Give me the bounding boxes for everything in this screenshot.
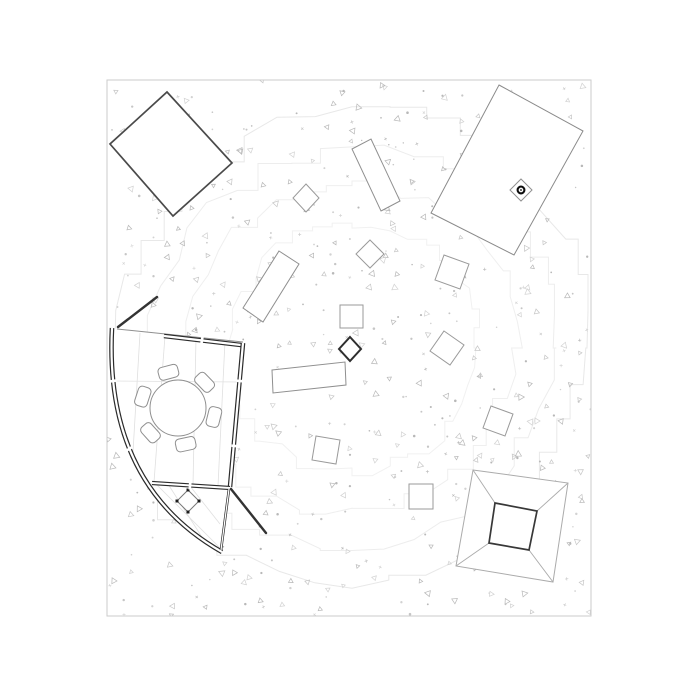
texture-dot	[313, 244, 315, 246]
texture-dot	[402, 396, 404, 398]
texture-dot	[431, 205, 433, 207]
site-plan-page	[0, 0, 700, 700]
texture-dot	[212, 129, 214, 131]
texture-dot	[295, 425, 297, 427]
texture-dot	[479, 407, 480, 408]
column-marker-dot	[520, 189, 522, 191]
pyramid-skylight	[456, 470, 568, 582]
texture-dot	[493, 388, 495, 390]
texture-dot	[224, 331, 226, 333]
texture-dot	[413, 158, 415, 160]
block-square-south-center	[409, 484, 433, 509]
texture-dot	[302, 304, 304, 306]
texture-dot	[420, 314, 422, 316]
texture-dot	[206, 242, 208, 244]
texture-dot	[448, 312, 450, 314]
texture-dot	[455, 483, 457, 485]
texture-dot	[411, 264, 412, 265]
texture-dot	[276, 513, 279, 516]
texture-dot	[431, 217, 433, 219]
texture-dot	[521, 307, 523, 309]
texture-dot	[427, 603, 429, 605]
texture-dot	[410, 338, 412, 340]
texture-dot	[361, 270, 363, 272]
texture-dot	[222, 189, 224, 191]
texture-dot	[525, 360, 527, 362]
texture-dot	[413, 435, 416, 438]
texture-dot	[373, 327, 376, 330]
texture-dot	[422, 90, 424, 92]
cabinet-corner	[187, 511, 190, 514]
texture-dot	[191, 307, 193, 309]
texture-dot	[519, 287, 521, 289]
texture-dot	[385, 250, 386, 251]
texture-dot	[420, 411, 422, 413]
texture-dot	[210, 305, 211, 306]
texture-dot	[230, 198, 232, 200]
texture-dot	[572, 526, 574, 528]
texture-dot	[349, 238, 351, 240]
texture-dot	[550, 272, 552, 274]
texture-dot	[403, 142, 404, 143]
texture-dot	[242, 338, 244, 340]
texture-dot	[454, 400, 457, 403]
texture-dot	[586, 256, 588, 258]
texture-dot	[111, 129, 113, 131]
texture-dot	[122, 599, 124, 601]
texture-dot	[131, 105, 133, 107]
texture-dot	[244, 603, 246, 605]
texture-dot	[439, 288, 441, 290]
texture-dot	[209, 579, 210, 580]
texture-dot	[296, 112, 298, 114]
texture-dot	[152, 275, 154, 277]
texture-dot	[326, 596, 327, 597]
texture-dot	[581, 165, 584, 168]
texture-dot	[388, 144, 389, 145]
texture-dot	[381, 338, 383, 340]
pyramid-inner	[489, 503, 537, 550]
texture-dot	[212, 111, 214, 113]
texture-dot	[151, 605, 153, 607]
texture-dot	[427, 446, 429, 448]
texture-dot	[246, 129, 248, 131]
texture-dot	[117, 306, 119, 308]
texture-dot	[223, 546, 225, 548]
texture-dot	[490, 461, 492, 463]
round-table	[150, 380, 206, 436]
texture-dot	[334, 263, 336, 265]
texture-dot	[539, 461, 541, 463]
texture-dot	[297, 523, 299, 525]
texture-dot	[233, 558, 235, 560]
texture-dot	[152, 519, 155, 522]
texture-dot	[130, 479, 132, 481]
texture-dot	[395, 146, 397, 148]
texture-dot	[572, 293, 574, 295]
texture-dot	[464, 488, 466, 490]
texture-dot	[583, 147, 585, 149]
texture-dot	[397, 316, 399, 318]
wall-joint-gap	[128, 448, 129, 450]
texture-dot	[323, 167, 325, 169]
texture-dot	[156, 217, 158, 219]
texture-dot	[335, 482, 337, 484]
texture-dot	[138, 195, 141, 198]
texture-dot	[453, 290, 455, 292]
texture-dot	[243, 128, 244, 129]
texture-dot	[260, 572, 262, 574]
texture-dot	[191, 96, 193, 98]
texture-dot	[271, 559, 273, 561]
texture-dot	[441, 95, 443, 97]
texture-dot	[574, 590, 576, 592]
block-square-center-north	[340, 305, 363, 328]
texture-dot	[320, 518, 322, 520]
texture-dot	[512, 456, 514, 458]
texture-dot	[369, 430, 371, 432]
texture-dot	[488, 592, 489, 593]
texture-dot	[344, 511, 346, 513]
texture-dot	[317, 245, 319, 247]
texture-dot	[349, 454, 351, 456]
texture-dot	[323, 334, 324, 335]
texture-dot	[578, 401, 580, 403]
texture-dot	[400, 601, 402, 603]
texture-dot	[434, 424, 436, 426]
texture-dot	[461, 94, 463, 96]
texture-dot	[153, 236, 155, 238]
texture-dot	[255, 409, 257, 411]
texture-dot	[575, 187, 576, 188]
texture-dot	[449, 415, 451, 417]
texture-dot	[400, 470, 402, 472]
texture-dot	[456, 320, 458, 322]
texture-dot	[393, 164, 395, 166]
cabinet-corner	[198, 500, 201, 503]
texture-dot	[260, 548, 262, 550]
site-plan-drawing	[0, 0, 700, 700]
texture-dot	[424, 534, 426, 536]
texture-dot	[409, 613, 412, 616]
texture-dot	[332, 211, 334, 213]
texture-dot	[315, 284, 317, 286]
texture-dot	[357, 207, 359, 209]
texture-dot	[152, 501, 154, 503]
texture-dot	[344, 423, 346, 425]
texture-dot	[553, 414, 555, 416]
texture-dot	[380, 117, 382, 119]
cabinet-corner	[176, 500, 179, 503]
texture-dot	[441, 417, 443, 419]
texture-dot	[329, 253, 331, 255]
texture-dot	[251, 125, 253, 127]
texture-dot	[361, 140, 362, 141]
texture-dot	[414, 189, 416, 191]
texture-dot	[446, 435, 448, 437]
texture-dot	[405, 396, 406, 397]
texture-dot	[127, 275, 129, 277]
texture-dot	[131, 554, 133, 556]
texture-dot	[516, 457, 518, 459]
block-square-tilted-south-center	[312, 436, 340, 464]
texture-dot	[430, 323, 432, 325]
texture-dot	[575, 513, 577, 515]
texture-dot	[332, 272, 335, 275]
texture-dot	[430, 406, 432, 408]
texture-dot	[349, 485, 351, 487]
texture-dot	[323, 309, 325, 311]
texture-dot	[406, 111, 409, 114]
texture-dot	[152, 537, 154, 539]
texture-dot	[496, 326, 498, 328]
texture-dot	[125, 253, 127, 255]
texture-dot	[289, 587, 291, 589]
texture-dot	[560, 389, 561, 390]
texture-dot	[389, 499, 390, 500]
texture-dot	[191, 585, 192, 586]
texture-dot	[533, 427, 535, 429]
texture-dot	[270, 232, 272, 234]
texture-dot	[460, 130, 463, 133]
texture-dot	[232, 216, 234, 218]
texture-dot	[136, 492, 138, 494]
